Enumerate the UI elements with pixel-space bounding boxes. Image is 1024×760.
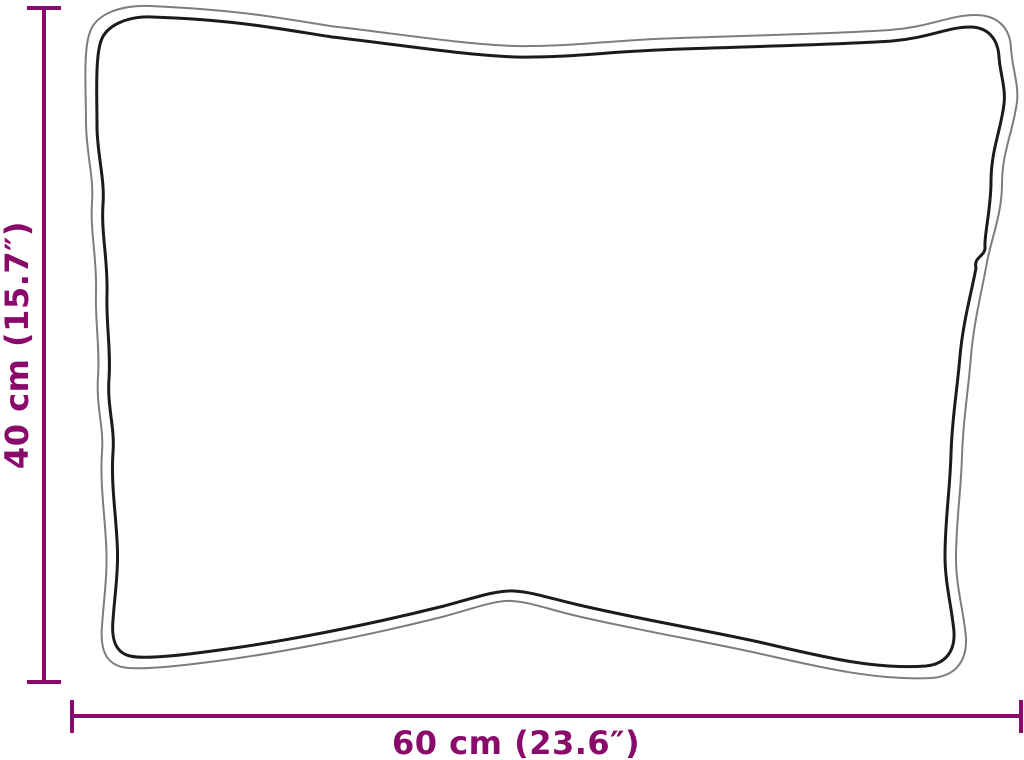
width-dimension-label: 60 cm (23.6″) [392, 724, 640, 760]
height-dimension-label: 40 cm (15.7″) [0, 221, 36, 469]
pillow-outline-outer [85, 6, 1017, 678]
pillow-outline-inner [97, 17, 1005, 667]
diagram-canvas [0, 0, 1024, 760]
pillow-dimension-diagram: 40 cm (15.7″) 60 cm (23.6″) [0, 0, 1024, 760]
